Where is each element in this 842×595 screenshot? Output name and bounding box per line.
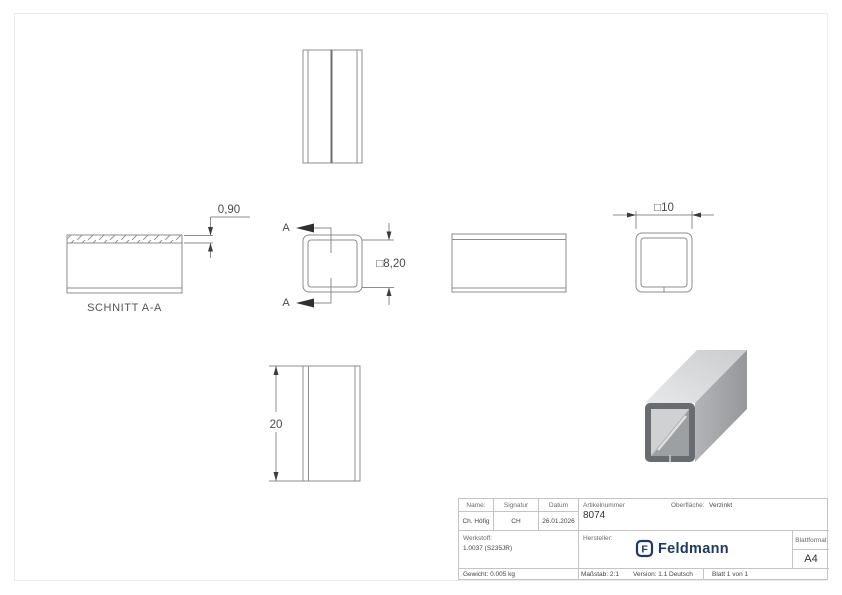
article-cell: Artikelnummer 8074 Oberfläche: Verzinkt [579, 499, 829, 531]
sheet-format-value-cell: A4 [793, 550, 829, 569]
weight-cell: Gewicht: 0.005 kg [459, 569, 579, 580]
value-date: 26.01.2026 [539, 512, 579, 531]
brand-logo: F Feldmann [635, 539, 729, 558]
side-view [452, 234, 566, 292]
brand-initial: F [641, 544, 648, 556]
manufacturer-label: Hersteller: [583, 535, 613, 542]
surface-label: Oberfläche: [671, 502, 705, 509]
top-view [303, 50, 362, 163]
sheet-format-cell: Blattformat [793, 531, 829, 550]
dim-outer-label: □10 [654, 202, 674, 214]
sheet-number-cell: Blatt 1 von 1 [704, 569, 829, 580]
value-signature-text: CH [511, 518, 520, 525]
cross-section-view [303, 235, 362, 292]
scale-text: Maßstab: 2:1 [581, 571, 619, 578]
article-label: Artikelnummer [583, 502, 625, 509]
section-title: SCHNITT A-A [87, 302, 162, 314]
title-block: Name: Signatur Datum Ch. Höfig CH 26.01.… [458, 498, 828, 580]
scale-cell: Maßstab: 2:1 Version: 1.1 Deutsch [579, 569, 704, 580]
front-view [303, 366, 360, 481]
section-view [67, 235, 182, 293]
article-number: 8074 [583, 510, 605, 521]
sheet-format-label: Blattformat [795, 537, 826, 544]
drawing-sheet: SCHNITT A-A 0,90 A A [0, 0, 842, 595]
dim-length-label: 20 [270, 419, 283, 431]
header-name-label: Name: [466, 502, 485, 509]
dim-wall-label: 0,90 [218, 204, 240, 216]
dim-inner-label: □8,20 [376, 258, 405, 270]
cut-label-bottom: A [282, 297, 290, 309]
end-view [636, 233, 692, 292]
sheet-number-text: Blatt 1 von 1 [712, 571, 748, 578]
header-signature-label: Signatur [504, 502, 528, 509]
sheet-format-value: A4 [804, 553, 817, 565]
header-signature: Signatur [494, 499, 539, 512]
surface-value: Verzinkt [709, 502, 732, 509]
feldmann-logo-icon: F [635, 539, 654, 558]
header-date-label: Datum [549, 502, 568, 509]
weight-text: Gewicht: 0.005 kg [459, 571, 515, 578]
value-name: Ch. Höfig [459, 512, 494, 531]
material-label: Werkstoff: [463, 535, 492, 542]
manufacturer-cell: Hersteller: F Feldmann [579, 531, 793, 569]
cut-label-top: A [282, 222, 290, 234]
value-name-text: Ch. Höfig [462, 518, 489, 525]
header-name: Name: [459, 499, 494, 512]
value-date-text: 26.01.2026 [542, 518, 575, 525]
header-date: Datum [539, 499, 579, 512]
version-text: Version: 1.1 [633, 571, 667, 578]
product-3d-render [645, 350, 747, 462]
brand-name: Feldmann [658, 541, 729, 557]
language-text: Deutsch [669, 571, 693, 578]
dim-wall-thickness [184, 217, 250, 258]
material-value: 1.0037 (S235JR) [463, 545, 512, 552]
value-signature: CH [494, 512, 539, 531]
material-cell: Werkstoff: 1.0037 (S235JR) [459, 531, 579, 569]
